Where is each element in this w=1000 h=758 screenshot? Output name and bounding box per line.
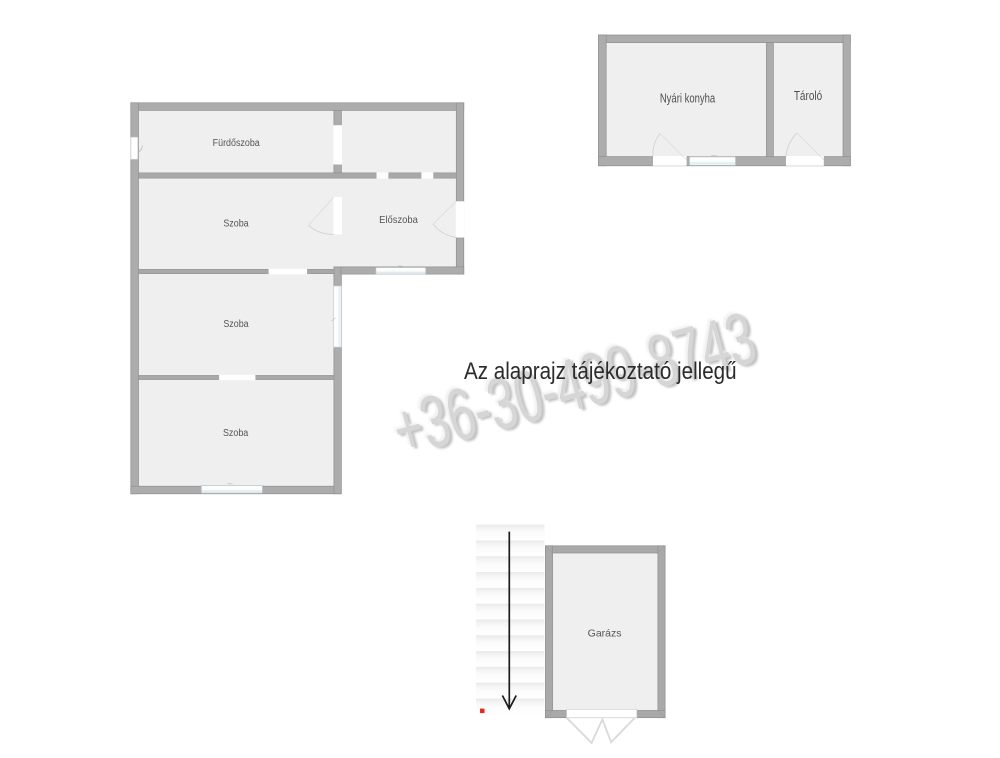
svg-text:Tároló: Tároló xyxy=(794,89,822,104)
svg-text:Szoba: Szoba xyxy=(223,427,249,439)
svg-text:Az alaprajz tájékoztató jelleg: Az alaprajz tájékoztató jellegű xyxy=(464,358,737,385)
svg-text:Garázs: Garázs xyxy=(588,628,622,640)
svg-text:Fürdőszoba: Fürdőszoba xyxy=(213,137,261,149)
svg-text:Szoba: Szoba xyxy=(223,318,249,330)
svg-text:Nyári konyha: Nyári konyha xyxy=(660,92,716,106)
svg-text:Előszoba: Előszoba xyxy=(379,215,418,227)
svg-text:Szoba: Szoba xyxy=(223,218,249,230)
